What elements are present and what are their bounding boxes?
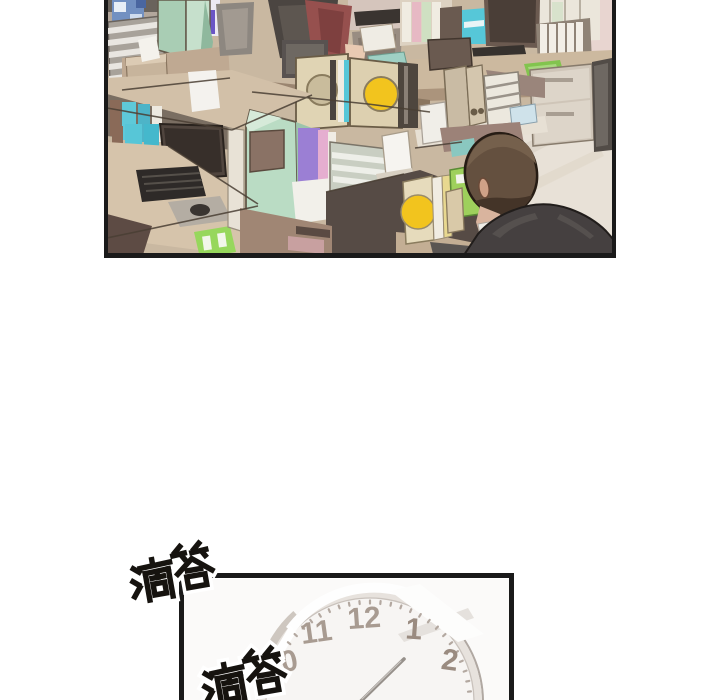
svg-text:12: 12 (346, 601, 382, 636)
svg-text:1: 1 (404, 612, 423, 646)
svg-text:11: 11 (298, 614, 334, 651)
